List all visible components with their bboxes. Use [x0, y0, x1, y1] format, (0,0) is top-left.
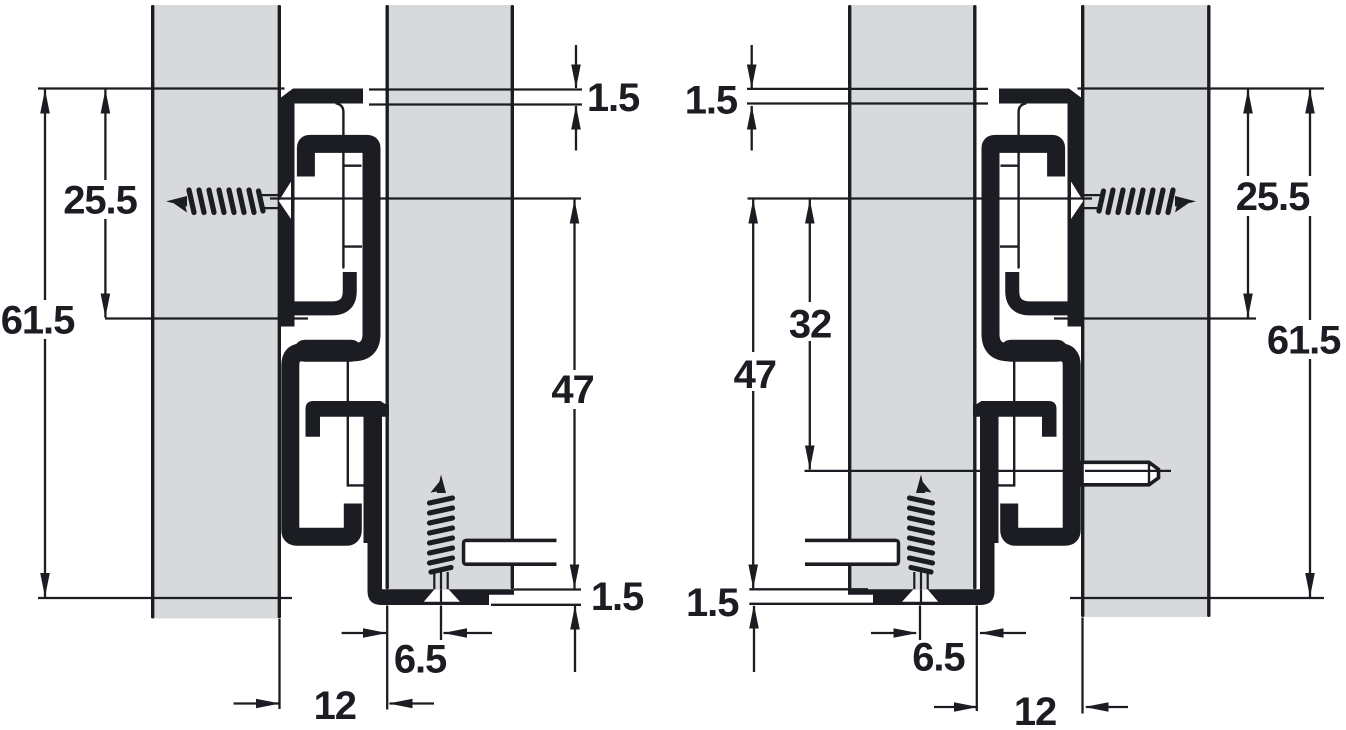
svg-text:32: 32	[789, 303, 831, 347]
svg-text:1.5: 1.5	[591, 575, 644, 619]
svg-text:6.5: 6.5	[912, 635, 965, 679]
svg-text:47: 47	[551, 368, 593, 412]
svg-text:25.5: 25.5	[63, 179, 137, 223]
svg-text:61.5: 61.5	[1267, 319, 1341, 363]
svg-text:12: 12	[314, 684, 356, 728]
svg-text:1.5: 1.5	[587, 76, 640, 120]
svg-text:1.5: 1.5	[686, 581, 739, 625]
svg-text:61.5: 61.5	[1, 298, 75, 342]
svg-text:12: 12	[1014, 690, 1056, 730]
svg-text:6.5: 6.5	[394, 638, 447, 682]
svg-text:1.5: 1.5	[685, 78, 738, 122]
svg-text:47: 47	[734, 353, 776, 397]
svg-text:25.5: 25.5	[1236, 175, 1310, 219]
